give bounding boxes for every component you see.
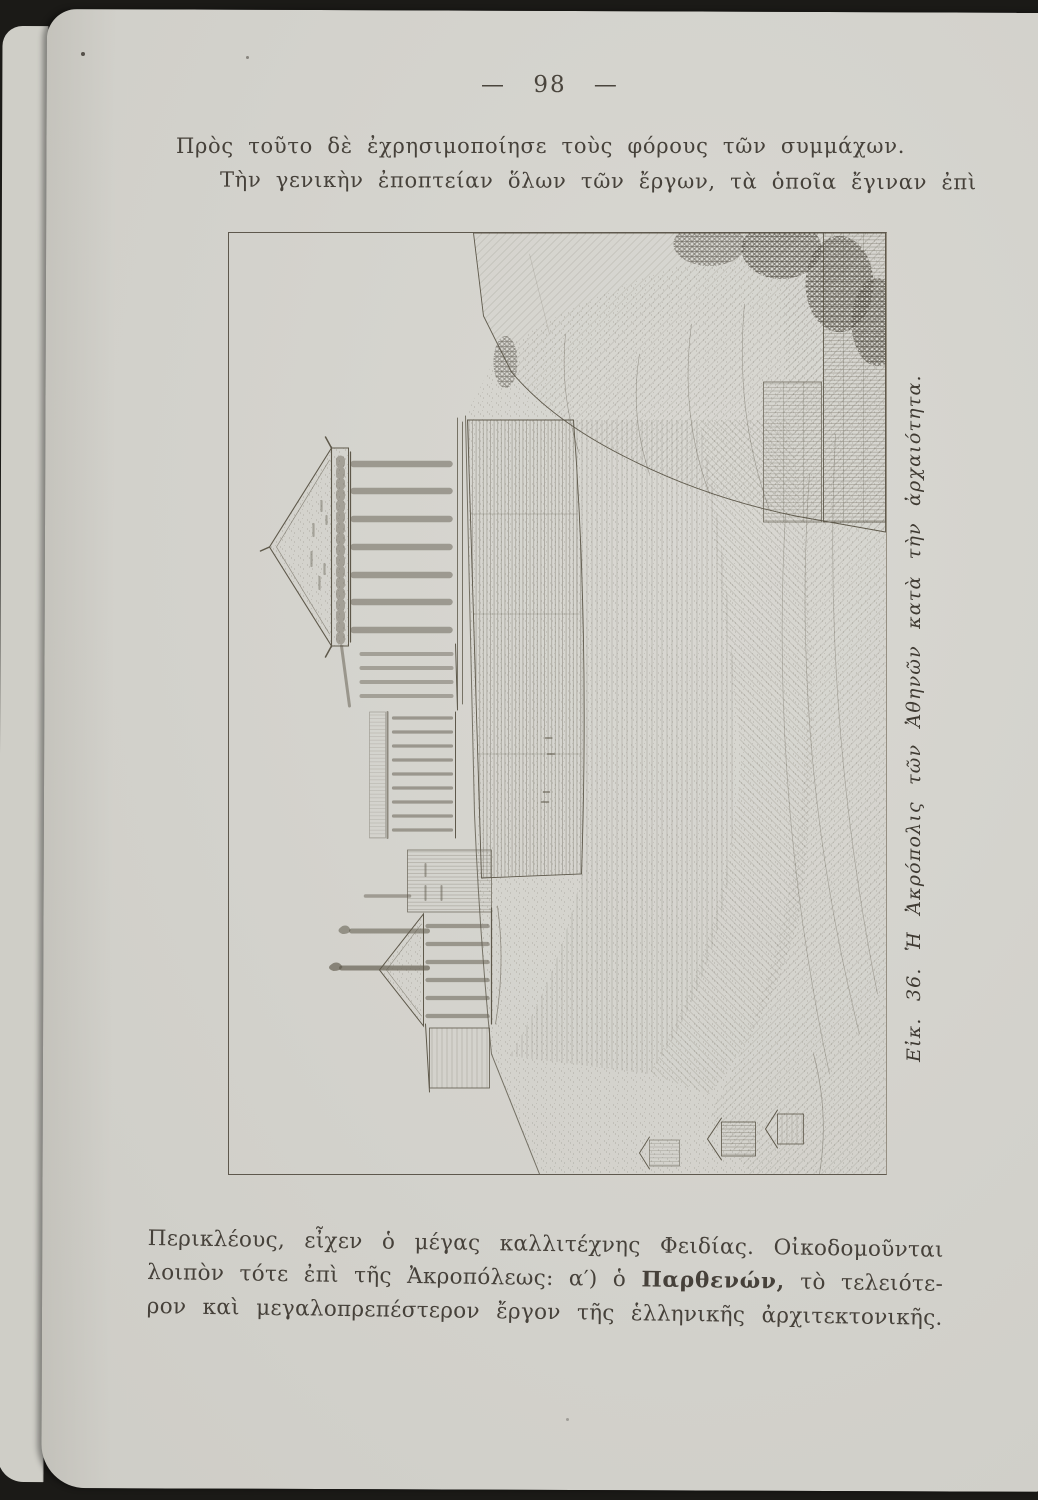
parthenon-bold-word: Παρθενών, — [641, 1267, 785, 1294]
body-line-2-pre: λοιπὸν τότε ἐπὶ τῆς Ἀκροπόλεως: α′) ὁ — [147, 1260, 642, 1292]
ink-speck — [566, 1418, 569, 1421]
body-paragraph: Περικλέους, εἶχεν ὁ μέγας καλλιτέχνης Φε… — [146, 1222, 943, 1336]
intro-line-2: Τὴν γενικὴν ἐποπτείαν ὅλων τῶν ἔργων, τὰ… — [220, 168, 977, 195]
parthenon — [261, 418, 463, 710]
acropolis-engraving-illustration — [229, 233, 886, 1174]
plateau-wall — [468, 420, 585, 878]
propylaea — [329, 850, 501, 1092]
figure-frame — [228, 232, 887, 1175]
ink-speck — [81, 52, 85, 56]
small-colonnade — [370, 712, 456, 838]
intro-line-1: Πρὸς τοῦτο δὲ ἐχρησιμοποίησε τοὺς φόρους… — [176, 134, 905, 158]
body-line-2-post: τὸ τελειότε- — [785, 1269, 944, 1296]
ink-speck — [246, 56, 249, 59]
figure-caption: Εἰκ. 36. Ἡ Ἀκρόπολις τῶν Ἀθηνῶν κατὰ τὴν… — [901, 394, 927, 1062]
page-number: — 98 — — [430, 72, 670, 98]
scanned-book-page: — 98 — Πρὸς τοῦτο δὲ ἐχρησιμοποίησε τοὺς… — [0, 0, 1038, 1500]
